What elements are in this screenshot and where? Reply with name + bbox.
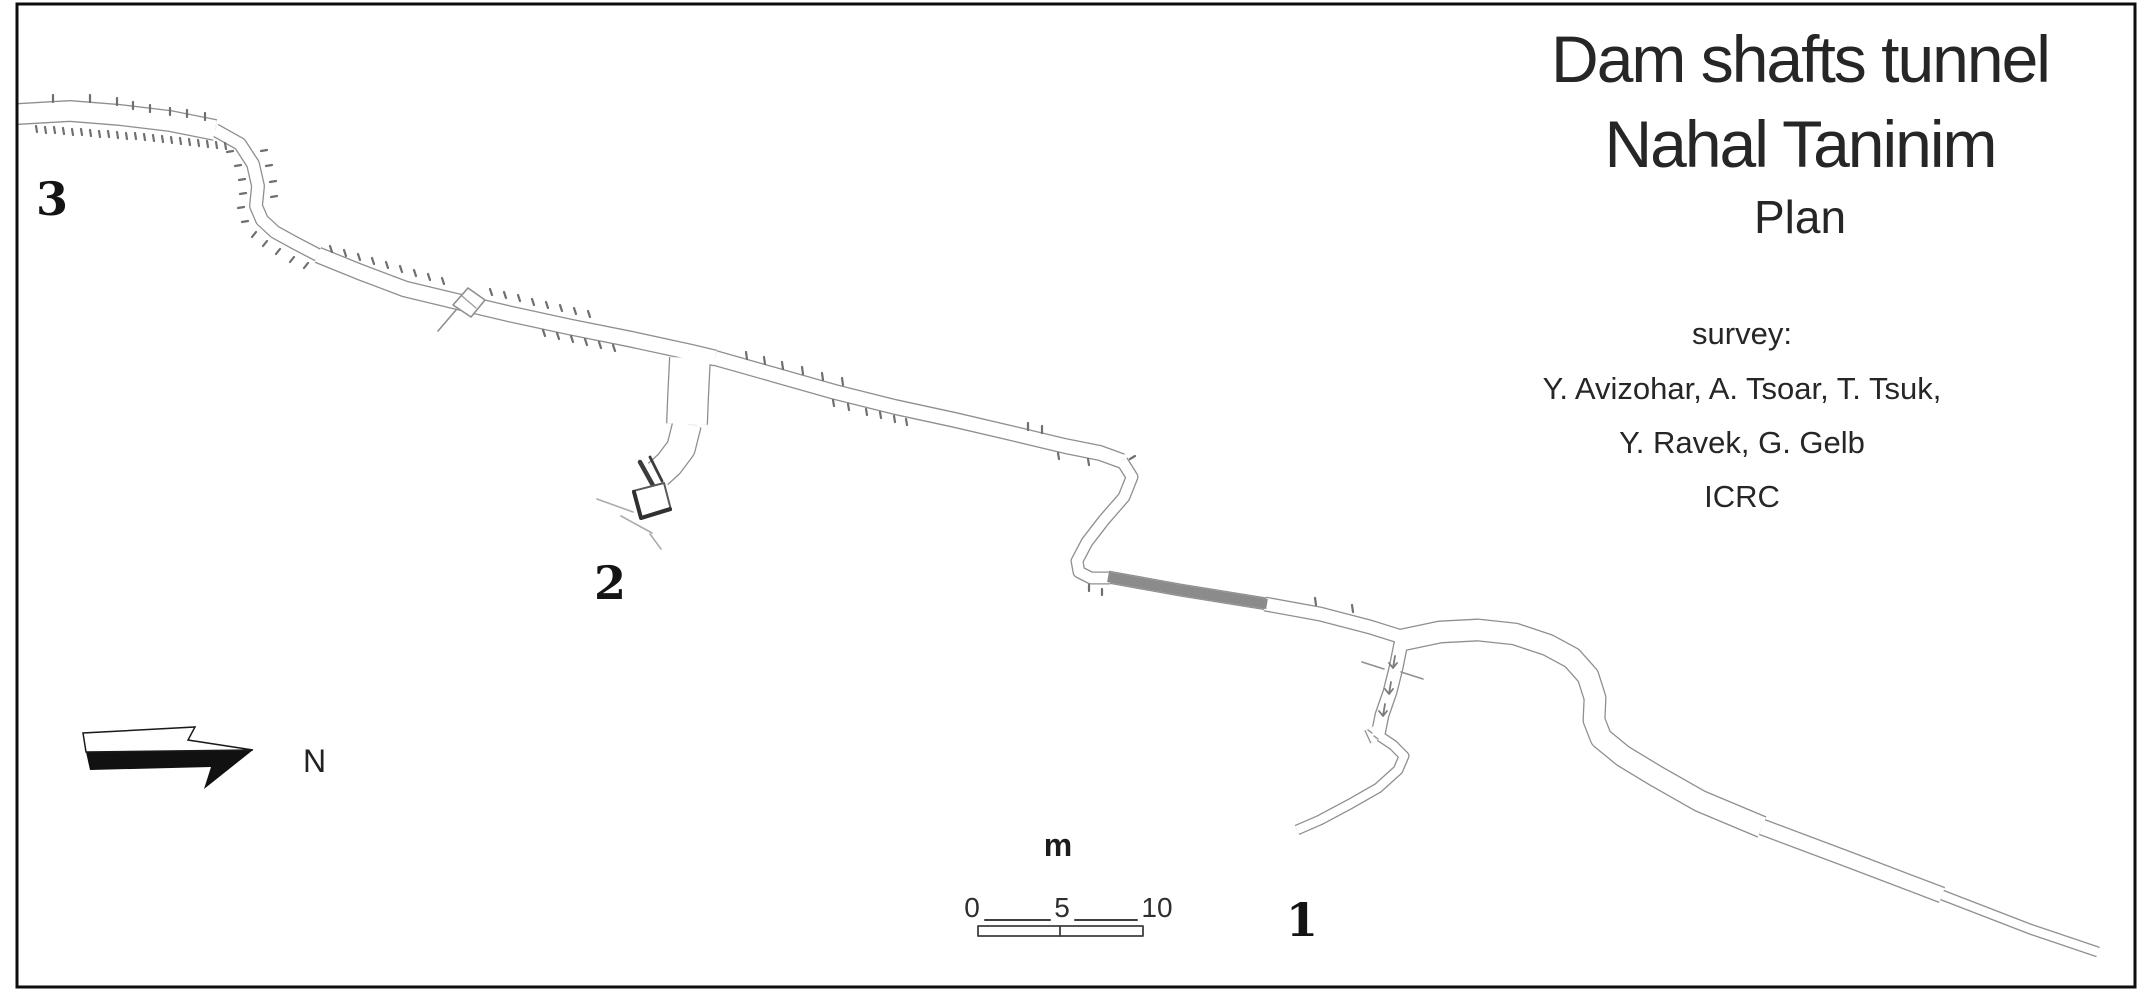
se-tail-upper-interior: [1762, 827, 1942, 895]
se-tail-lower-interior: [1942, 895, 2098, 952]
scalebar-unit-label: m: [1044, 827, 1072, 863]
survey-org: ICRC: [1704, 479, 1780, 514]
se-loop-interior: [1402, 630, 1762, 827]
mid-structure-tail: [438, 310, 456, 331]
shaft-2-label: 2: [594, 556, 626, 610]
nw-bend-walls: [215, 130, 318, 255]
north-label: N: [303, 743, 326, 779]
shaft2-branch-upper-interior: [687, 358, 690, 424]
shaft1-step-line-right: [1401, 672, 1423, 679]
survey-heading: survey:: [1692, 316, 1792, 351]
north-arrow-black-half: [86, 750, 253, 789]
scalebar-tick-5: 5: [1054, 892, 1070, 923]
figure-title-line2: Nahal Taninim: [1604, 107, 1995, 181]
shaft1-step-line-left: [1362, 662, 1384, 669]
gray-filled-segment: [1108, 577, 1267, 604]
shaft2-ground-line-1: [597, 499, 633, 512]
survey-names-line2: Y. Ravek, G. Gelb: [1619, 425, 1865, 460]
shaft2-ground-line-3: [650, 534, 661, 549]
shaft-1-label: 1: [1286, 893, 1318, 947]
tunnel-plan-drawing: N m 0 5 10 3 2 1 Dam shafts tunnel Nahal…: [0, 0, 2140, 995]
shaft-3-label: 3: [36, 172, 68, 226]
shaft1-hook-interior: [1297, 735, 1404, 830]
figure-subtitle: Plan: [1754, 191, 1846, 243]
nw-bend-interior: [215, 130, 318, 255]
gray-segment-passage-gray-fill: [1108, 577, 1267, 604]
north-arrow-white-half: [83, 727, 253, 752]
scalebar-tick-10: 10: [1141, 892, 1172, 923]
figure-title-line1: Dam shafts tunnel: [1551, 22, 2049, 96]
north-arrow-icon: [83, 727, 253, 789]
tunnel-plan-figure: N m 0 5 10 3 2 1 Dam shafts tunnel Nahal…: [0, 0, 2140, 995]
scalebar-tick-0: 0: [964, 892, 980, 923]
survey-names-line1: Y. Avizohar, A. Tsoar, T. Tsuk,: [1543, 371, 1942, 406]
east-gallery-interior: [1265, 604, 1405, 638]
mid-gallery-east-interior: [715, 358, 1122, 461]
s-bend-interior: [1077, 461, 1132, 578]
shaft2-ground-line-2: [621, 516, 652, 533]
